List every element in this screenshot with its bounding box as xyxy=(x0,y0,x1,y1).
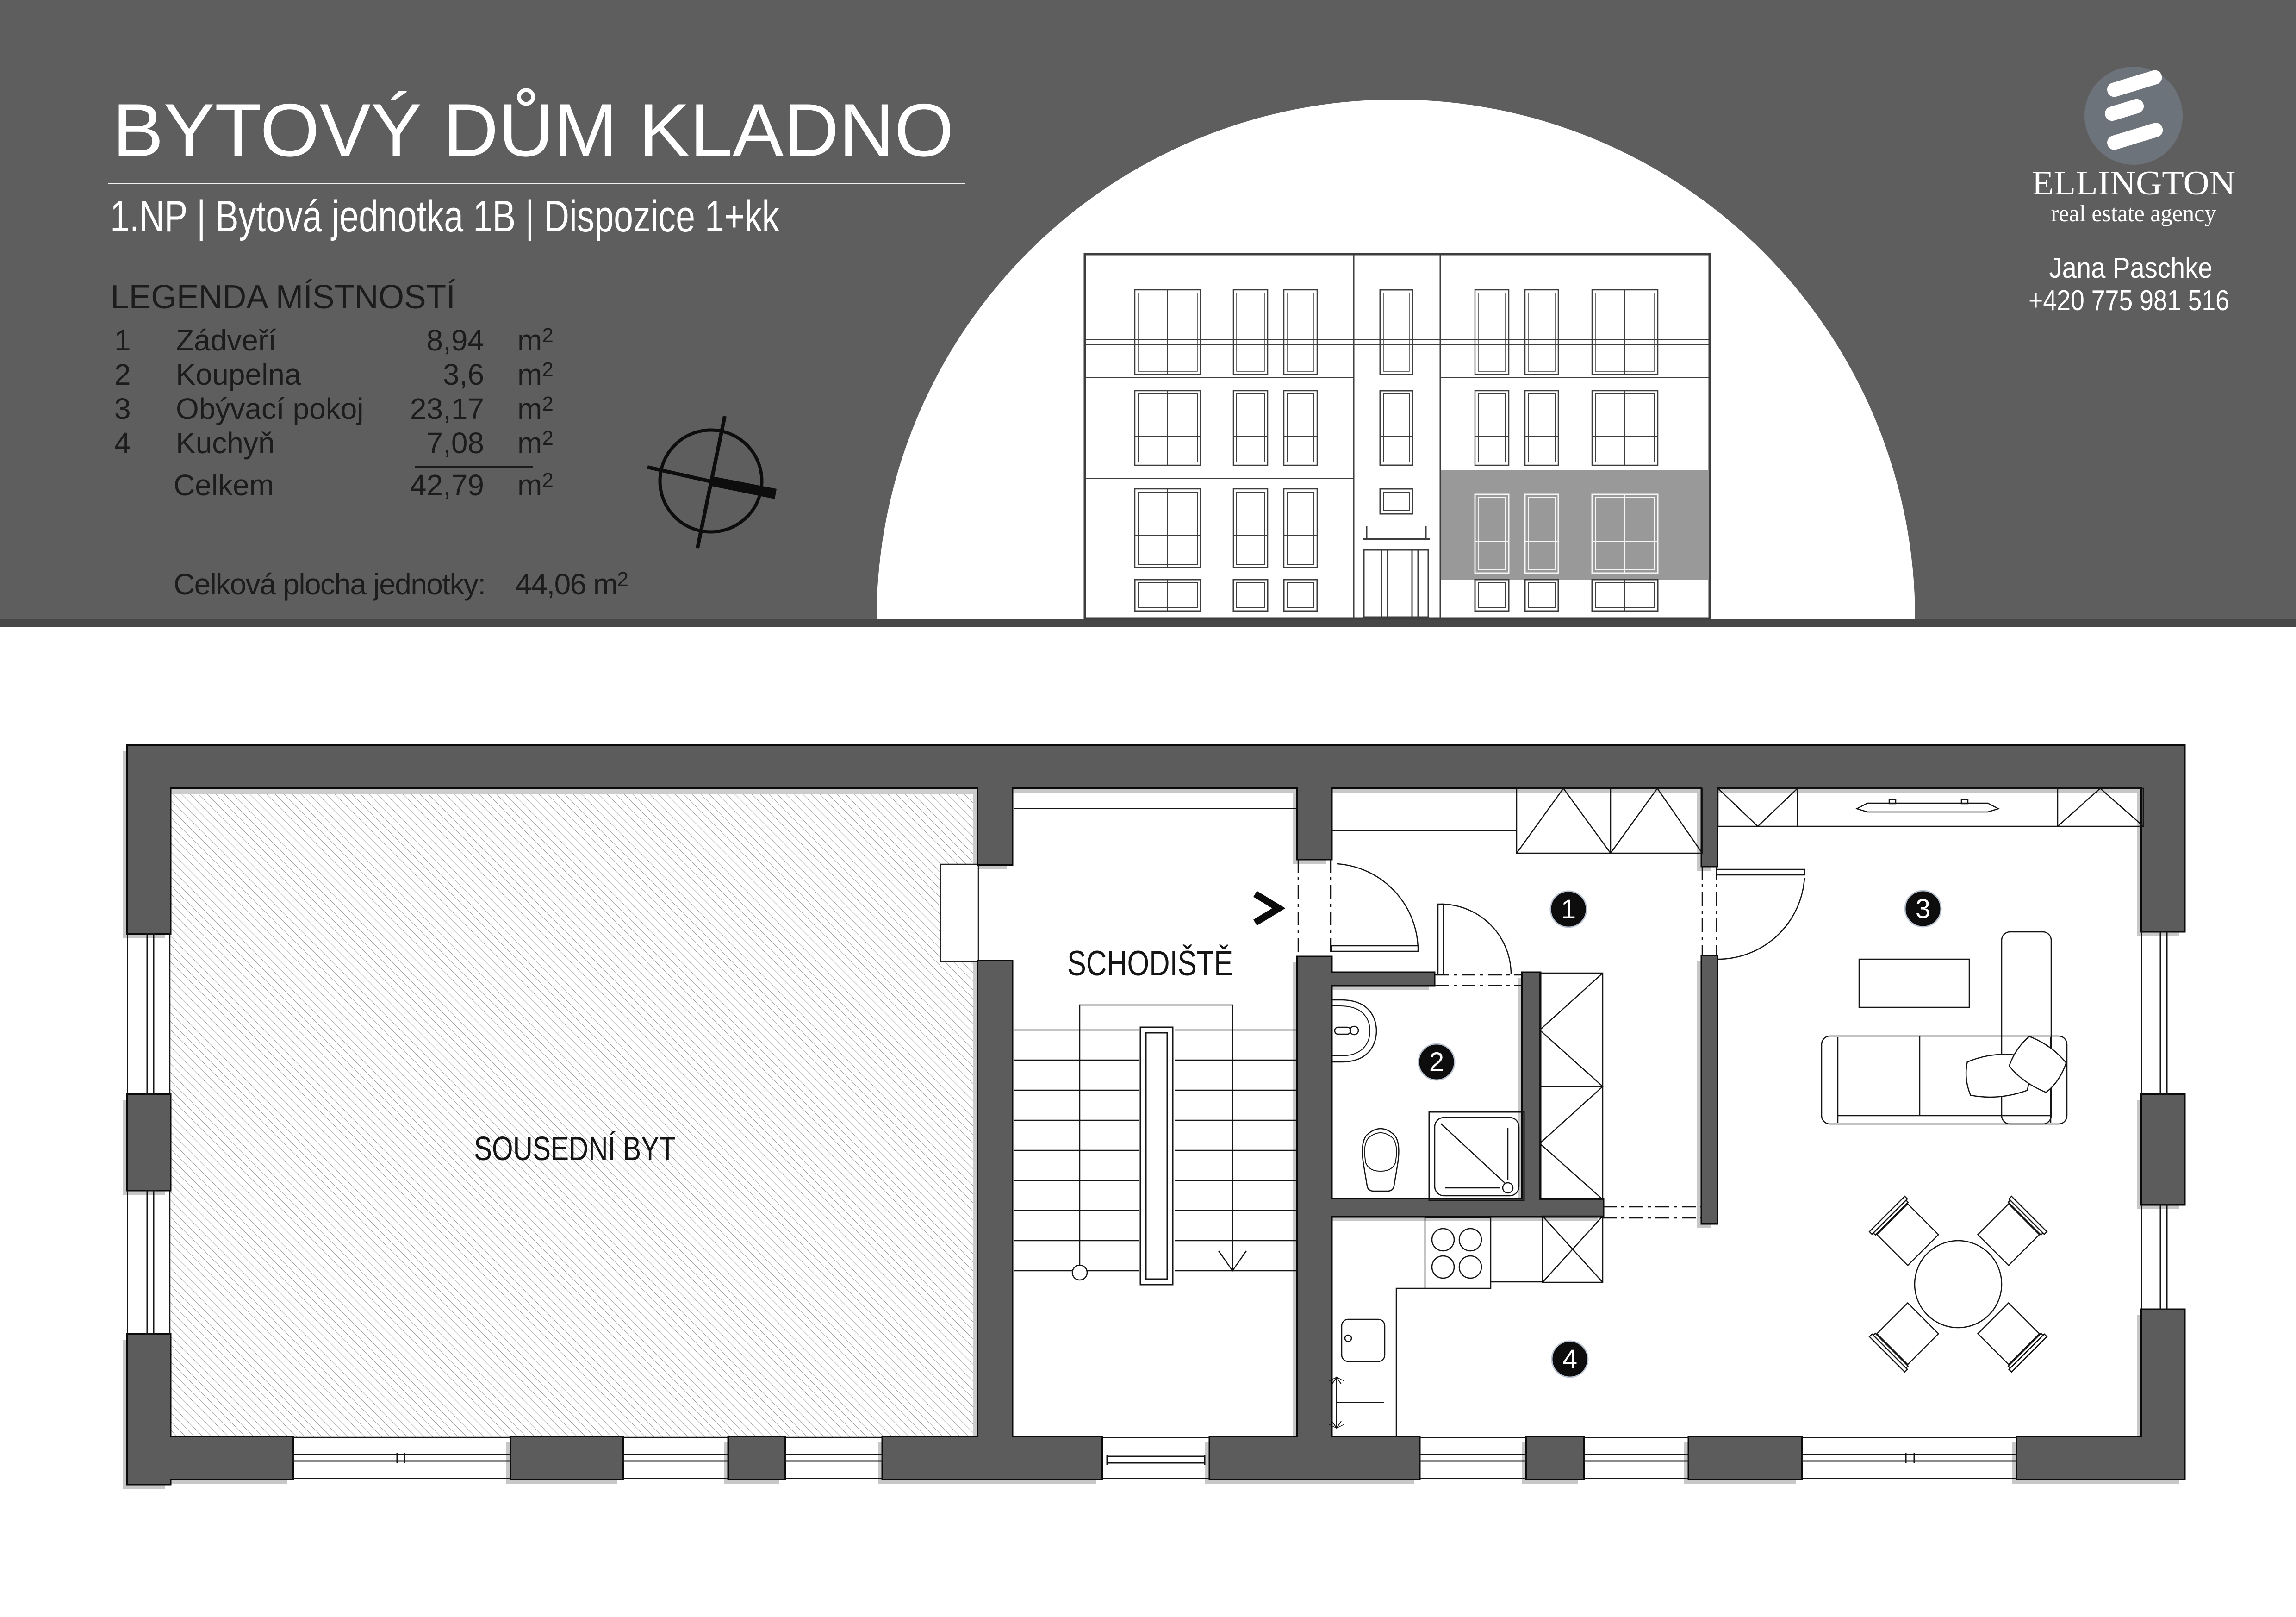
svg-text:1: 1 xyxy=(1561,894,1576,924)
svg-text:Kuchyň: Kuchyň xyxy=(176,426,274,460)
svg-text:1.NP | Bytová jednotka 1B | Di: 1.NP | Bytová jednotka 1B | Dispozice 1+… xyxy=(110,192,780,241)
svg-text:Zádveří: Zádveří xyxy=(176,324,276,357)
svg-text:SCHODIŠTĚ: SCHODIŠTĚ xyxy=(1067,944,1233,983)
svg-text:Obývací pokoj: Obývací pokoj xyxy=(176,392,364,425)
svg-text:3: 3 xyxy=(1916,894,1930,924)
svg-text:real estate agency: real estate agency xyxy=(2051,200,2216,227)
svg-text:4: 4 xyxy=(1562,1344,1577,1374)
svg-text:7,08: 7,08 xyxy=(426,426,484,460)
svg-text:42,79: 42,79 xyxy=(410,468,484,502)
svg-text:2: 2 xyxy=(114,358,131,391)
svg-text:Celkem: Celkem xyxy=(174,468,274,502)
svg-text:23,17: 23,17 xyxy=(410,392,484,425)
svg-text:1: 1 xyxy=(114,324,131,357)
svg-text:LEGENDA MÍSTNOSTÍ: LEGENDA MÍSTNOSTÍ xyxy=(111,279,455,316)
svg-text:3: 3 xyxy=(114,392,131,425)
svg-text:3,6: 3,6 xyxy=(443,358,484,391)
svg-text:ELLINGTON: ELLINGTON xyxy=(2032,164,2235,202)
svg-text:BYTOVÝ DŮM KLADNO: BYTOVÝ DŮM KLADNO xyxy=(112,88,954,172)
svg-text:Celková plocha jednotky: 44: Celková plocha jednotky: 44,06 m2 xyxy=(174,568,628,601)
svg-text:4: 4 xyxy=(114,426,131,460)
svg-text:8,94: 8,94 xyxy=(426,324,484,357)
svg-text:SOUSEDNÍ BYT: SOUSEDNÍ BYT xyxy=(474,1130,676,1167)
svg-text:+420 775 981 516: +420 775 981 516 xyxy=(2028,285,2229,317)
svg-text:Koupelna: Koupelna xyxy=(176,358,301,391)
svg-text:Jana Paschke: Jana Paschke xyxy=(2049,252,2213,284)
svg-text:2: 2 xyxy=(1429,1047,1444,1077)
